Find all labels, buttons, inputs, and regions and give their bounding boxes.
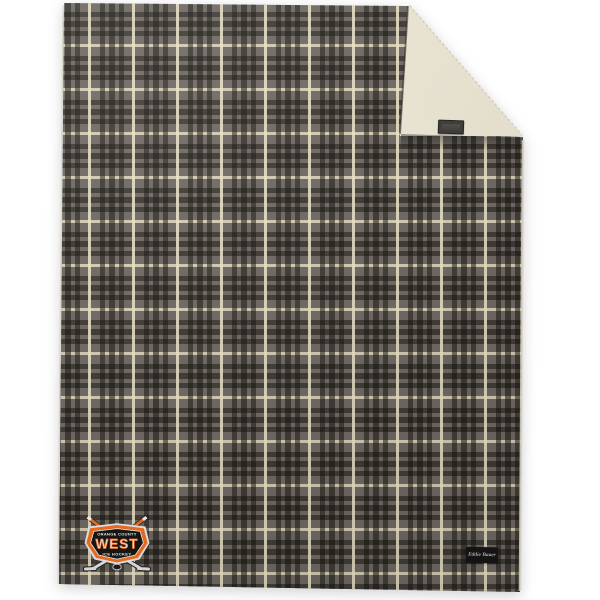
product-photo: Eddie Bauer: [0, 0, 600, 600]
badge-main-text: WEST: [96, 537, 139, 552]
team-logo-badge: ORANGE COUNTY WEST ICE HOCKEY: [83, 516, 151, 574]
badge-bottom-text: ICE HOCKEY: [103, 551, 132, 556]
blanket: Eddie Bauer: [0, 0, 600, 600]
fold-tag: [438, 120, 464, 135]
plaid-front: [0, 0, 600, 600]
brand-label: Eddie Bauer: [466, 547, 498, 564]
puck-icon: [113, 564, 121, 570]
brand-label-text: Eddie Bauer: [468, 552, 496, 558]
